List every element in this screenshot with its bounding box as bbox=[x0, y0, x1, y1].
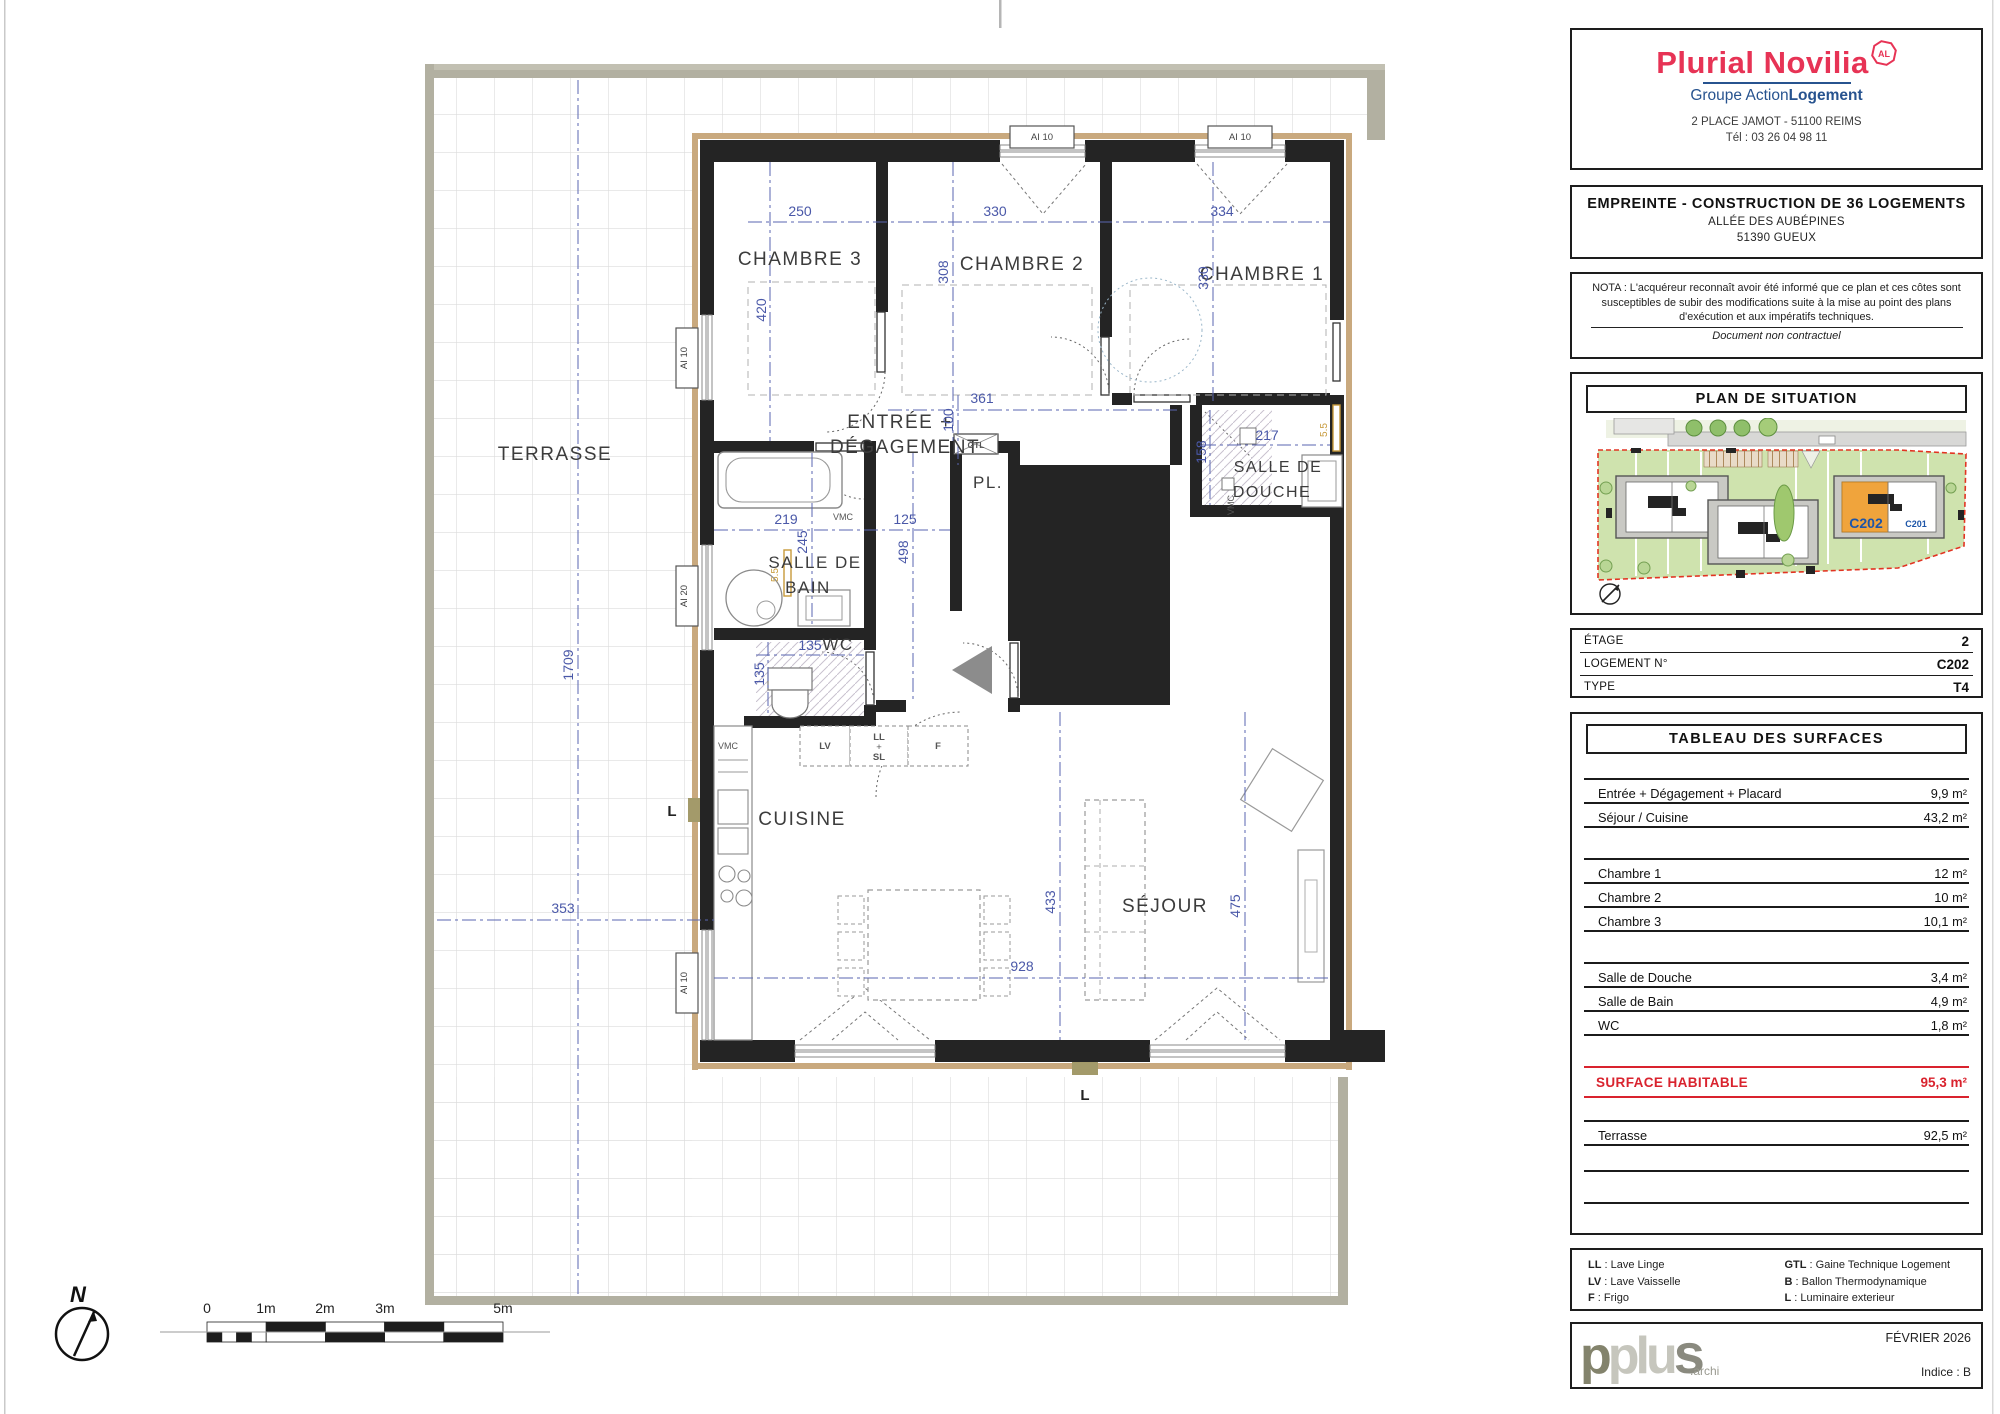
surface-total-value: 95,3 m² bbox=[1920, 1075, 1969, 1090]
titleblock-footer: pplus .archi FÉVRIER 2026 Indice : B bbox=[1570, 1322, 1983, 1389]
dim-330b: 330 bbox=[1195, 266, 1211, 290]
page-edge-mark bbox=[4, 0, 6, 1414]
unit-c201-label: C201 bbox=[1905, 519, 1927, 529]
table-rule bbox=[1584, 1202, 1969, 1204]
nota-text: NOTA : L'acquéreur reconnaît avoir été i… bbox=[1582, 281, 1971, 325]
scale-2m: 2m bbox=[315, 1300, 334, 1316]
dim-361: 361 bbox=[970, 390, 994, 406]
dim-475: 475 bbox=[1227, 894, 1243, 918]
address-line2: Tél : 03 26 04 98 11 bbox=[1572, 130, 1981, 146]
surface-row-chambre3: Chambre 3 10,1 m² bbox=[1584, 908, 1969, 932]
legend-item-lv: LV : Lave Vaisselle bbox=[1588, 1274, 1785, 1291]
window-tag-ai20-left: AI 20 bbox=[679, 585, 690, 607]
crop-mark bbox=[999, 0, 1002, 28]
surface-row-bain: Salle de Bain 4,9 m² bbox=[1584, 988, 1969, 1012]
surface-value: 4,9 m² bbox=[1931, 994, 1969, 1009]
project-block: EMPREINTE - CONSTRUCTION DE 36 LOGEMENTS… bbox=[1570, 185, 1983, 259]
legend-item-l: L : Luminaire exterieur bbox=[1785, 1290, 1982, 1307]
plan-date: FÉVRIER 2026 bbox=[1886, 1331, 1971, 1345]
situation-title: PLAN DE SITUATION bbox=[1586, 385, 1967, 413]
unit-value: C202 bbox=[1937, 657, 1969, 672]
project-street: ALLÉE DES AUBÉPINES bbox=[1572, 216, 1981, 228]
room-sejour: SÉJOUR bbox=[1122, 896, 1208, 917]
room-sdb-2: BAIN bbox=[785, 578, 831, 597]
address-line1: 2 PLACE JAMOT - 51100 REIMS bbox=[1572, 114, 1981, 130]
room-terrasse: TERRASSE bbox=[498, 444, 612, 465]
unit-row-etage: ÉTAGE 2 bbox=[1580, 630, 1973, 653]
surface-value: 10,1 m² bbox=[1924, 914, 1969, 929]
surface-row-entree: Entrée + Dégagement + Placard 9,9 m² bbox=[1584, 780, 1969, 804]
vmc-label-kitchen: VMC bbox=[718, 741, 739, 751]
dim-135b: 135 bbox=[751, 662, 767, 686]
room-entree-1: ENTRÉE + bbox=[847, 412, 952, 433]
dim-100: 100 bbox=[940, 408, 956, 432]
appliance-f: F bbox=[935, 741, 941, 752]
dim-135a: 135 bbox=[798, 637, 822, 653]
surface-row-douche: Salle de Douche 3,4 m² bbox=[1584, 964, 1969, 988]
surface-label: Séjour / Cuisine bbox=[1584, 810, 1688, 825]
window-tag-ai10-top1: AI 10 bbox=[1031, 132, 1053, 143]
compass-n-label: N bbox=[70, 1282, 87, 1307]
window-tag-ai10-left2: AI 10 bbox=[679, 972, 690, 994]
plan-indice: Indice : B bbox=[1921, 1365, 1971, 1379]
unit-row-logement: LOGEMENT N° C202 bbox=[1580, 653, 1973, 676]
dim-353: 353 bbox=[551, 900, 575, 916]
room-chambre3: CHAMBRE 3 bbox=[738, 249, 862, 270]
room-cuisine: CUISINE bbox=[758, 809, 846, 830]
gtl-label: GTL bbox=[968, 440, 985, 450]
logo-divider bbox=[1703, 82, 1851, 84]
surface-value: 12 m² bbox=[1934, 866, 1969, 881]
surface-total-row: SURFACE HABITABLE 95,3 m² bbox=[1584, 1066, 1969, 1098]
room-sdd-1: SALLE DE bbox=[1234, 459, 1322, 476]
appliance-lv: LV bbox=[819, 741, 831, 752]
vmc-label-shower: VMC bbox=[1226, 495, 1236, 516]
surface-value: 9,9 m² bbox=[1931, 786, 1969, 801]
window-tag-ai10-top2: AI 10 bbox=[1229, 132, 1251, 143]
page-edge-mark-right bbox=[1992, 0, 1994, 1414]
dim-219: 219 bbox=[774, 511, 798, 527]
group-name: Groupe ActionLogement bbox=[1572, 87, 1981, 105]
legend-item-gtl: GTL : Gaine Technique Logement bbox=[1785, 1257, 1982, 1274]
dim-928: 928 bbox=[1010, 958, 1034, 974]
light-label-left: L bbox=[667, 803, 676, 820]
room-placard: PL. bbox=[973, 473, 1003, 492]
dim-433: 433 bbox=[1042, 890, 1058, 914]
dim-217: 217 bbox=[1255, 427, 1279, 443]
legend-item-b: B : Ballon Thermodynamique bbox=[1785, 1274, 1982, 1291]
surface-row-sejour: Séjour / Cuisine 43,2 m² bbox=[1584, 804, 1969, 828]
unit-label: LOGEMENT N° bbox=[1584, 658, 1668, 670]
surface-row-wc: WC 1,8 m² bbox=[1584, 1012, 1969, 1036]
al-hexagon-icon: AL bbox=[1871, 40, 1897, 71]
surface-label: Entrée + Dégagement + Placard bbox=[1584, 786, 1782, 801]
room-chambre1: CHAMBRE 1 bbox=[1200, 264, 1324, 285]
room-entree-2: DÉGAGEMENT bbox=[830, 437, 980, 458]
surface-label: Salle de Douche bbox=[1584, 970, 1692, 985]
dim-158: 158 bbox=[1193, 440, 1209, 464]
surface-value: 1,8 m² bbox=[1931, 1018, 1969, 1033]
surface-value: 43,2 m² bbox=[1924, 810, 1969, 825]
dim-125: 125 bbox=[893, 511, 917, 527]
surface-label: Terrasse bbox=[1584, 1128, 1647, 1143]
surface-value: 10 m² bbox=[1934, 890, 1969, 905]
radiator-55-shower: 5.5 bbox=[1319, 423, 1330, 437]
window-tag-ai10-left1: AI 10 bbox=[679, 347, 690, 369]
surfaces-table: TABLEAU DES SURFACES Entrée + Dégagement… bbox=[1570, 712, 1983, 1235]
dim-308: 308 bbox=[935, 260, 951, 284]
situation-block: PLAN DE SITUATION bbox=[1570, 372, 1983, 615]
legend-item-ll: LL : Lave Linge bbox=[1588, 1257, 1785, 1274]
nota-block: NOTA : L'acquéreur reconnaît avoir été i… bbox=[1570, 272, 1983, 359]
room-wc: WC bbox=[822, 635, 853, 654]
dim-250: 250 bbox=[788, 203, 812, 219]
room-sdb-1: SALLE DE bbox=[768, 553, 861, 572]
dim-1709: 1709 bbox=[560, 649, 576, 680]
unit-row-type: TYPE T4 bbox=[1580, 676, 1973, 698]
light-label-bottom: L bbox=[1080, 1087, 1089, 1104]
dim-330: 330 bbox=[983, 203, 1007, 219]
logo-block: Plurial Novilia AL Groupe ActionLogement… bbox=[1570, 28, 1983, 170]
scale-5m: 5m bbox=[493, 1300, 512, 1316]
surface-row-chambre2: Chambre 2 10 m² bbox=[1584, 884, 1969, 908]
surface-value: 92,5 m² bbox=[1924, 1128, 1969, 1143]
surface-label: Chambre 3 bbox=[1584, 914, 1661, 929]
surface-label: WC bbox=[1584, 1018, 1619, 1033]
unit-label: TYPE bbox=[1584, 681, 1615, 693]
nota-divider bbox=[1591, 327, 1963, 329]
unit-value: 2 bbox=[1961, 634, 1969, 649]
scale-3m: 3m bbox=[375, 1300, 394, 1316]
situation-map: C202 C201 bbox=[1576, 418, 1977, 610]
legend-block: LL : Lave Linge LV : Lave Vaisselle F : … bbox=[1570, 1248, 1983, 1311]
surface-total-label: SURFACE HABITABLE bbox=[1584, 1075, 1748, 1090]
unit-value: T4 bbox=[1953, 680, 1969, 695]
north-compass: N bbox=[56, 1282, 108, 1360]
scale-bar: 0 1m 2m 3m 5m bbox=[160, 1300, 550, 1342]
surface-value: 3,4 m² bbox=[1931, 970, 1969, 985]
legend-item-f: F : Frigo bbox=[1588, 1290, 1785, 1307]
room-sdd-2: DOUCHE bbox=[1233, 484, 1311, 501]
group-name-bold: Logement bbox=[1789, 87, 1863, 104]
unit-c202-label: C202 bbox=[1849, 515, 1883, 531]
appliance-sl: SL bbox=[873, 752, 885, 763]
project-title: EMPREINTE - CONSTRUCTION DE 36 LOGEMENTS bbox=[1572, 196, 1981, 212]
surface-label: Chambre 1 bbox=[1584, 866, 1661, 881]
surface-row-terrasse: Terrasse 92,5 m² bbox=[1584, 1122, 1969, 1146]
unit-info-table: ÉTAGE 2 LOGEMENT N° C202 TYPE T4 bbox=[1570, 628, 1983, 698]
pplus-archi-logo: pplus bbox=[1580, 1326, 1705, 1397]
surface-row-chambre1: Chambre 1 12 m² bbox=[1584, 860, 1969, 884]
radiator-55-bath: 5.5 bbox=[770, 568, 781, 582]
room-chambre2: CHAMBRE 2 bbox=[960, 254, 1084, 275]
surface-label: Chambre 2 bbox=[1584, 890, 1661, 905]
svg-text:AL: AL bbox=[1878, 49, 1890, 59]
project-city: 51390 GUEUX bbox=[1572, 232, 1981, 244]
dim-498: 498 bbox=[895, 540, 911, 564]
brand-name: Plurial Novilia bbox=[1656, 48, 1869, 78]
vmc-label-bath: VMC bbox=[833, 512, 854, 522]
dim-245: 245 bbox=[794, 530, 810, 554]
nota-footnote: Document non contractuel bbox=[1572, 330, 1981, 342]
unit-label: ÉTAGE bbox=[1584, 635, 1624, 647]
group-name-regular: Groupe Action bbox=[1690, 87, 1788, 104]
scale-1m: 1m bbox=[256, 1300, 275, 1316]
dim-334: 334 bbox=[1210, 203, 1234, 219]
surfaces-title: TABLEAU DES SURFACES bbox=[1586, 724, 1967, 754]
surface-label: Salle de Bain bbox=[1584, 994, 1673, 1009]
pplus-archi-suffix: .archi bbox=[1690, 1364, 1719, 1378]
scale-0: 0 bbox=[203, 1300, 211, 1316]
dim-420: 420 bbox=[753, 298, 769, 322]
